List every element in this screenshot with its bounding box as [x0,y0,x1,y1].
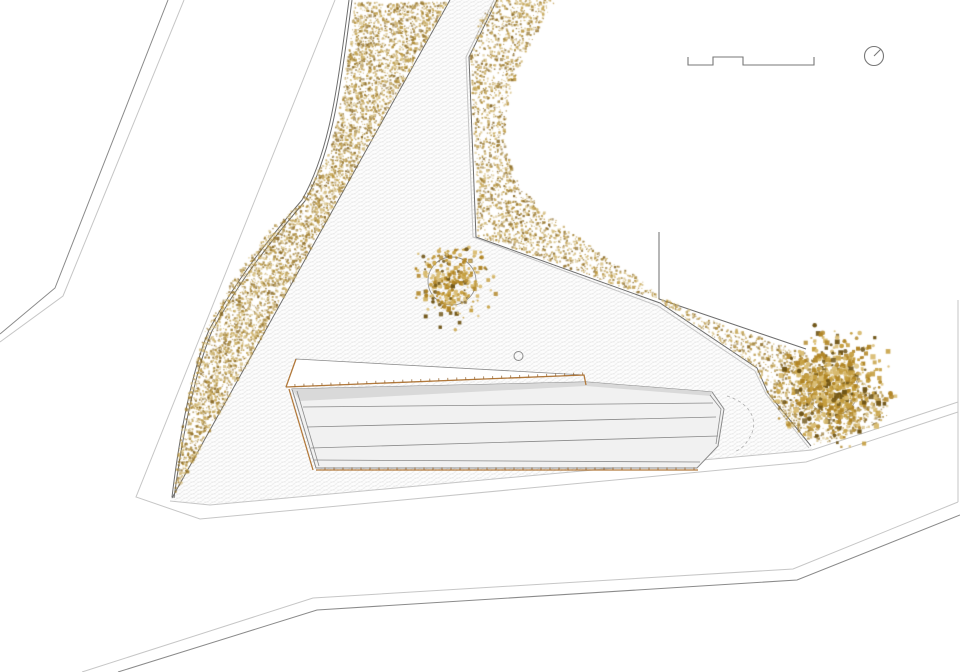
road-upper-left-outer-line [0,0,184,342]
annotations [688,47,884,66]
road-bottom-outer-line [82,502,958,672]
scale-bar [688,57,814,65]
site-plan [0,0,960,672]
site-plan-drawing [0,0,960,672]
road-bottom-inner-line [118,515,960,672]
tree-east-canopy-ring [808,365,858,415]
road-upper-left-inner-line [0,0,168,334]
north-arrow-icon [865,47,884,66]
